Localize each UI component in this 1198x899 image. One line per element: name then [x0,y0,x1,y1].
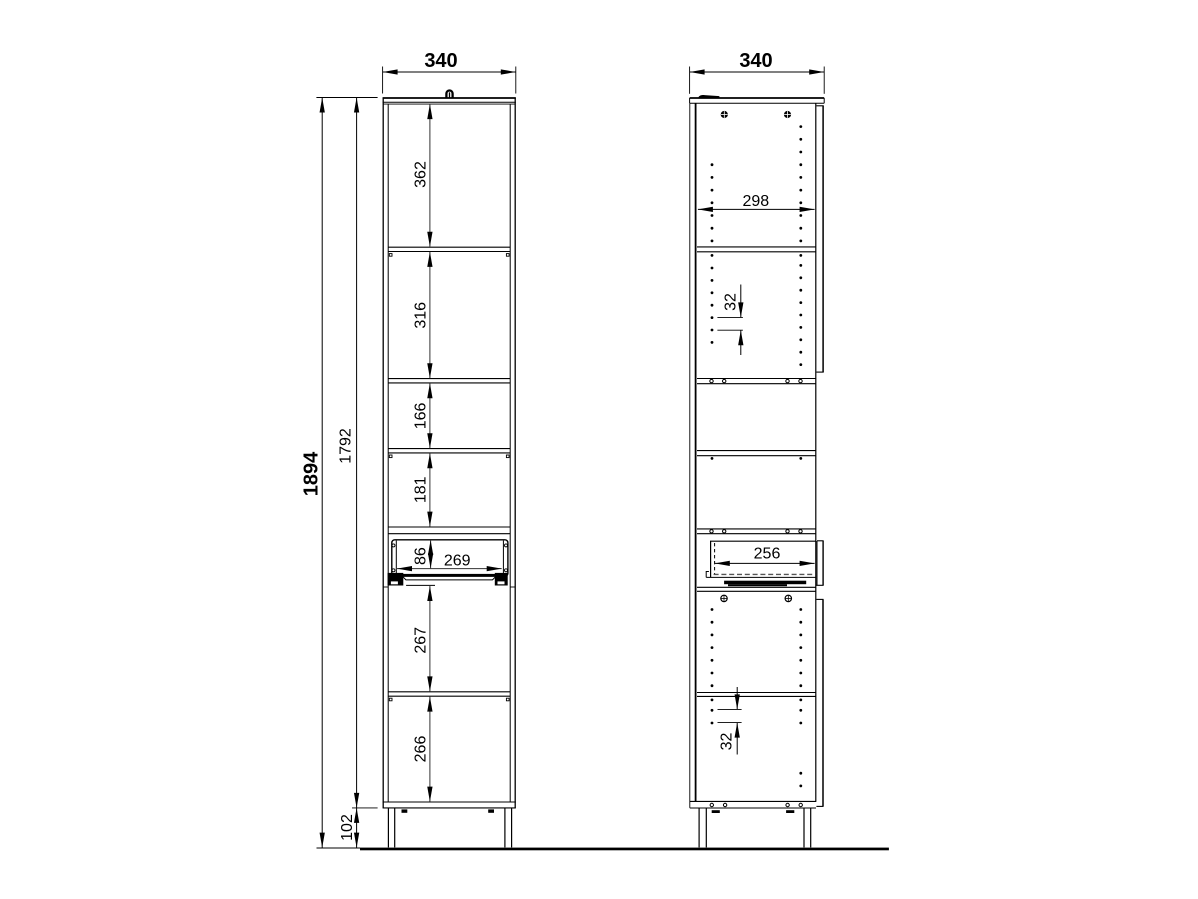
svg-text:340: 340 [739,50,772,72]
svg-text:86: 86 [413,547,430,565]
svg-text:340: 340 [424,50,457,72]
svg-text:32: 32 [719,733,736,751]
svg-text:269: 269 [444,552,471,569]
svg-text:102: 102 [339,814,356,841]
svg-text:181: 181 [412,476,429,503]
svg-text:1894: 1894 [301,451,323,496]
svg-text:166: 166 [412,402,429,429]
svg-text:1792: 1792 [338,428,355,464]
svg-text:32: 32 [723,293,740,311]
svg-text:267: 267 [412,627,429,654]
svg-text:266: 266 [412,736,429,763]
svg-text:256: 256 [754,545,781,562]
svg-text:316: 316 [412,302,429,329]
svg-text:298: 298 [742,193,769,210]
svg-text:362: 362 [412,161,429,188]
